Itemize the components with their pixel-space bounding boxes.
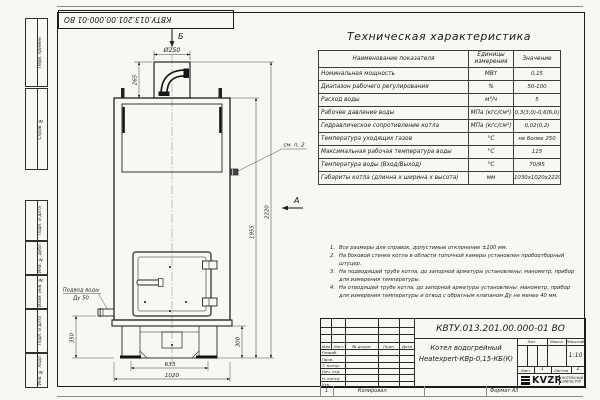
spec-cell: %	[469, 81, 514, 94]
spec-cell: Рабочее давление воды	[319, 107, 469, 120]
note-text: На отводящей трубе котла, до запорной ар…	[339, 284, 576, 300]
notes-list: 1.Все размеры для справок, допустимые от…	[326, 244, 576, 300]
note-item: 3.На подводящей трубе котла, до запорной…	[326, 268, 576, 284]
spec-cell: 0,3(3,0)-0,6(6,0)	[514, 107, 561, 120]
tb-col-dokum: № докум.	[346, 344, 378, 349]
spec-row: Гидравлическое сопротивление котлаМПа (к…	[319, 120, 561, 133]
note-text: Все размеры для справок, допустимые откл…	[339, 244, 507, 252]
spec-row: Габариты котла (длинна х ширина х высота…	[319, 172, 561, 185]
lifting-lug-left	[121, 88, 125, 98]
stamp-label: Справ. №	[38, 118, 43, 139]
lifting-lug-right	[219, 88, 223, 98]
tb-doc-name-line2: Heatexpert-КВр-0,15-КБ(К)	[415, 354, 517, 365]
stamp-perv-primen: Перв. примен.	[25, 18, 48, 87]
tb-col-izm: Изм	[321, 344, 331, 349]
flue-elbow	[159, 69, 190, 97]
dim-350-label: 350	[70, 332, 76, 343]
spec-row: Температура воды (Вход/Выход)°С70/95	[319, 159, 561, 172]
note-number: 3.	[326, 268, 335, 284]
tb-row-nachotd: Нач. отд.	[322, 369, 341, 374]
tb-sheet-label: Лист	[517, 368, 534, 373]
spec-cell: 1030х1020х2220	[514, 172, 561, 185]
note-item: 1.Все размеры для справок, допустимые от…	[326, 244, 576, 252]
view-a-arrow	[282, 206, 304, 211]
note-item: 2.На боковой стенке котла в области топо…	[326, 252, 576, 268]
dim-inlet-350	[72, 316, 114, 358]
water-supply-callout-2: Ду 50	[72, 296, 89, 302]
title-block: Изм Лист № докум. Подп. Дата Разраб. Про…	[320, 318, 586, 388]
stamp-label: Инв. № дубл.	[38, 243, 43, 273]
spec-table: Наименование показателя Единицы измерени…	[318, 50, 561, 185]
dim-2220-label: 2220	[265, 205, 271, 219]
boiler-front-view: Б А Ø250 265 300 1955 2220 350 633 1020 …	[60, 12, 310, 385]
see-note-callout: см. п. 2	[283, 143, 305, 149]
stamp-vzam-inv: Взам. инв. №	[25, 274, 48, 310]
spec-cell: Номинальная мощность	[319, 68, 469, 81]
spec-cell: 50-100	[514, 81, 561, 94]
tb-designation: КВТУ.013.201.00.000-01 ВО	[414, 319, 586, 339]
drawing-sheet: Перв. примен. Справ. № Подп. и дата Инв.…	[0, 0, 600, 400]
note-text: На боковой стенке котла в области топочн…	[339, 252, 576, 268]
spec-cell: МВт	[469, 68, 514, 81]
tb-sheets-value: 2	[571, 367, 585, 372]
spec-header-name: Наименование показателя	[319, 51, 469, 68]
spec-cell: Температура воды (Вход/Выход)	[319, 159, 469, 172]
spec-cell: 0,02(0,2)	[514, 120, 561, 133]
note-item: 4.На отводящей трубе котла, до запорной …	[326, 284, 576, 300]
kvzr-logo-text: KVZR	[532, 375, 562, 386]
water-supply-callout-1: Подвод воды	[63, 288, 100, 294]
spec-header-value: Значение	[514, 51, 561, 68]
door-hinge-top	[203, 261, 218, 269]
stamp-inv-dubl: Инв. № дубл.	[25, 240, 48, 276]
stamp-label: Перв. примен.	[38, 36, 43, 68]
dim-633-label: 633	[165, 362, 176, 368]
dim-300-label: 300	[236, 336, 242, 347]
door-hinge-bottom	[203, 298, 218, 306]
spec-cell: Гидравлическое сопротивление котла	[319, 120, 469, 133]
view-a-label: А	[293, 196, 299, 205]
view-b-arrow	[170, 29, 175, 48]
spec-cell: 0,15	[514, 68, 561, 81]
footer-format-label: Формат А3	[490, 388, 518, 394]
stamp-podp-data-2: Подп. и дата	[25, 308, 48, 354]
stamp-inv-podl: Инв. № подл.	[25, 352, 48, 388]
spec-row: Диапазон рабочего регулирования%50-100	[319, 81, 561, 94]
dim-chimney-dia-label: Ø250	[163, 46, 181, 54]
spec-cell: Температура уходящих газов	[319, 133, 469, 146]
spec-cell: не более 250	[514, 133, 561, 146]
tb-sheet-value: 1	[534, 367, 551, 372]
spec-cell: мм	[469, 172, 514, 185]
spec-cell: 115	[514, 146, 561, 159]
spec-row: Номинальная мощностьМВт0,15	[319, 68, 561, 81]
spec-cell: 70/95	[514, 159, 561, 172]
spec-cell: м³/ч	[469, 94, 514, 107]
sampling-fitting	[230, 149, 307, 175]
note-number: 1.	[326, 244, 335, 252]
tb-row-prov: Пров.	[322, 357, 333, 362]
spec-cell: Габариты котла (длинна х ширина х высота…	[319, 172, 469, 185]
stamp-label: Подп. и дата	[38, 316, 43, 345]
stamp-label: Подп. и дата	[38, 206, 43, 235]
tb-lit-label: Лит.	[517, 339, 547, 344]
spec-row: Рабочее давление водыМПа (кгс/см²)0,3(3,…	[319, 107, 561, 120]
kvzr-logo-icon	[521, 376, 530, 385]
spec-header-units: Единицы измерения	[469, 51, 514, 68]
stamp-podp-data-1: Подп. и дата	[25, 200, 48, 242]
spec-cell: Максимальная рабочая температура воды	[319, 146, 469, 159]
tb-mass-label: Масса	[547, 339, 566, 344]
tb-scale-value: 1:10	[566, 352, 585, 359]
spec-cell: °С	[469, 146, 514, 159]
dim-1955-label: 1955	[250, 225, 256, 239]
company-line2: ЗАВОД РЭП	[562, 380, 583, 384]
dim-265-label: 265	[133, 74, 139, 85]
note-text: На подводящей трубе котла, до запорной а…	[339, 268, 576, 284]
dim-1020-label: 1020	[165, 373, 180, 379]
tb-document-name: Котел водогрейный Heatexpert-КВр-0,15-КБ…	[414, 338, 517, 387]
spec-header-row: Наименование показателя Единицы измерени…	[319, 51, 561, 68]
tb-col-list: Лист	[332, 344, 345, 349]
dim-right-extensions	[190, 62, 274, 358]
spec-cell: 5	[514, 94, 561, 107]
kvzr-company-name: КОТЕЛЬНЫЙ ЗАВОД РЭП	[562, 376, 583, 384]
sheet-top-edge	[57, 6, 583, 7]
note-number: 4.	[326, 284, 335, 300]
spec-cell: МПа (кгс/см²)	[469, 120, 514, 133]
stamp-label: Взам. инв. №	[38, 277, 43, 307]
tb-sheets-label: Листов	[551, 368, 571, 373]
spec-row: Температура уходящих газов°Сне более 250	[319, 133, 561, 146]
support-stand	[120, 326, 217, 359]
note-number: 2.	[326, 252, 335, 268]
spec-cell: Диапазон рабочего регулирования	[319, 81, 469, 94]
tb-row-utv: Утв.	[322, 382, 330, 387]
furnace-door	[133, 252, 217, 316]
view-b-label: Б	[178, 32, 184, 41]
tb-row-razrab: Разраб.	[322, 350, 337, 355]
stamp-sprav-no: Справ. №	[25, 88, 48, 170]
tb-doc-name-line1: Котел водогрейный	[415, 343, 517, 354]
spec-row: Максимальная рабочая температура воды°С1…	[319, 146, 561, 159]
tb-col-podp: Подп.	[379, 344, 399, 349]
tb-row-nkontr: Н. контр.	[322, 376, 341, 381]
spec-cell: МПа (кгс/см²)	[469, 107, 514, 120]
tb-scale-label: Масштаб	[566, 339, 585, 344]
spec-cell: °С	[469, 133, 514, 146]
tb-row-tkontr: Т. контр.	[322, 363, 340, 368]
spec-cell: °С	[469, 159, 514, 172]
stamp-label: Инв. № подл.	[38, 355, 43, 385]
footer-zone: 1	[325, 388, 328, 394]
spec-table-title: Техническая характеристика	[318, 30, 560, 43]
spec-cell: Расход воды	[319, 94, 469, 107]
door-handle	[137, 280, 161, 285]
tb-col-data: Дата	[400, 344, 414, 349]
footer-copy-label: Копировал	[358, 388, 387, 394]
spec-row: Расход водым³/ч5	[319, 94, 561, 107]
